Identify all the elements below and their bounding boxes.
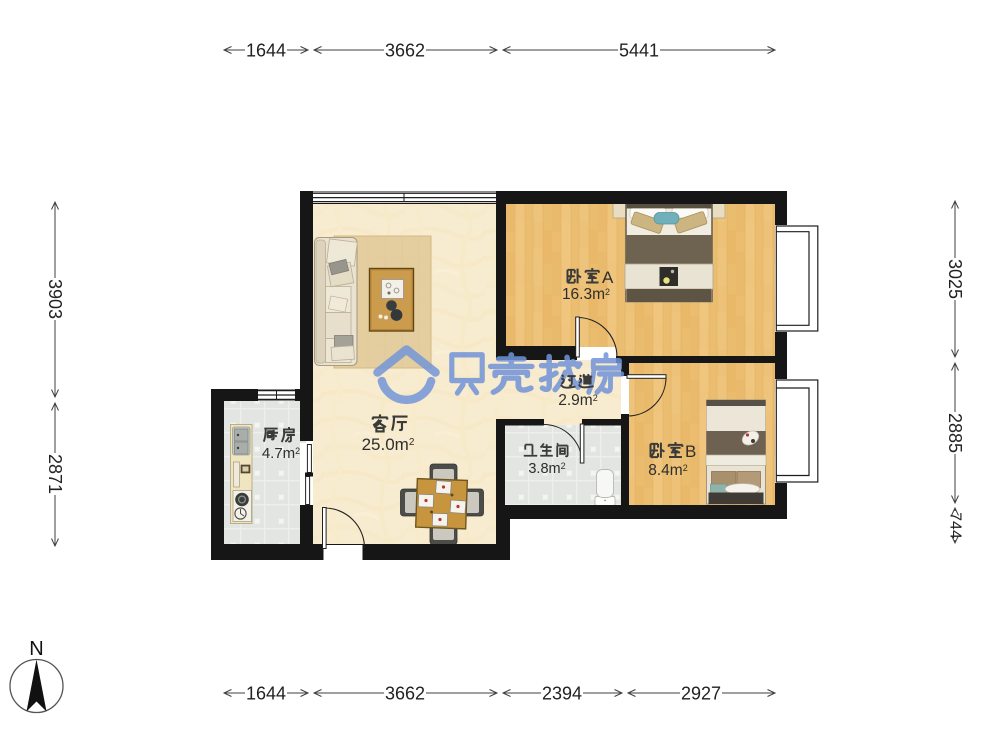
svg-text:8.4m2: 8.4m2 bbox=[648, 462, 687, 479]
svg-text:2394: 2394 bbox=[542, 684, 582, 704]
svg-text:A: A bbox=[602, 268, 614, 287]
svg-text:3903: 3903 bbox=[45, 279, 65, 319]
svg-text:16.3m2: 16.3m2 bbox=[562, 286, 610, 303]
svg-text:3662: 3662 bbox=[385, 684, 425, 704]
svg-text:25.0m2: 25.0m2 bbox=[362, 435, 415, 454]
svg-text:3025: 3025 bbox=[945, 259, 965, 299]
svg-text:2927: 2927 bbox=[681, 684, 721, 704]
svg-text:1644: 1644 bbox=[246, 41, 286, 61]
svg-text:2.9m2: 2.9m2 bbox=[558, 392, 597, 409]
svg-text:1644: 1644 bbox=[246, 684, 286, 704]
svg-text:5441: 5441 bbox=[619, 41, 659, 61]
svg-text:3.8m2: 3.8m2 bbox=[528, 461, 565, 477]
svg-text:744: 744 bbox=[947, 512, 964, 539]
svg-text:4.7m2: 4.7m2 bbox=[262, 445, 300, 462]
svg-text:N: N bbox=[29, 638, 43, 660]
svg-text:2885: 2885 bbox=[945, 413, 965, 453]
svg-text:2871: 2871 bbox=[45, 454, 65, 494]
svg-text:B: B bbox=[685, 442, 696, 461]
svg-text:3662: 3662 bbox=[385, 41, 425, 61]
